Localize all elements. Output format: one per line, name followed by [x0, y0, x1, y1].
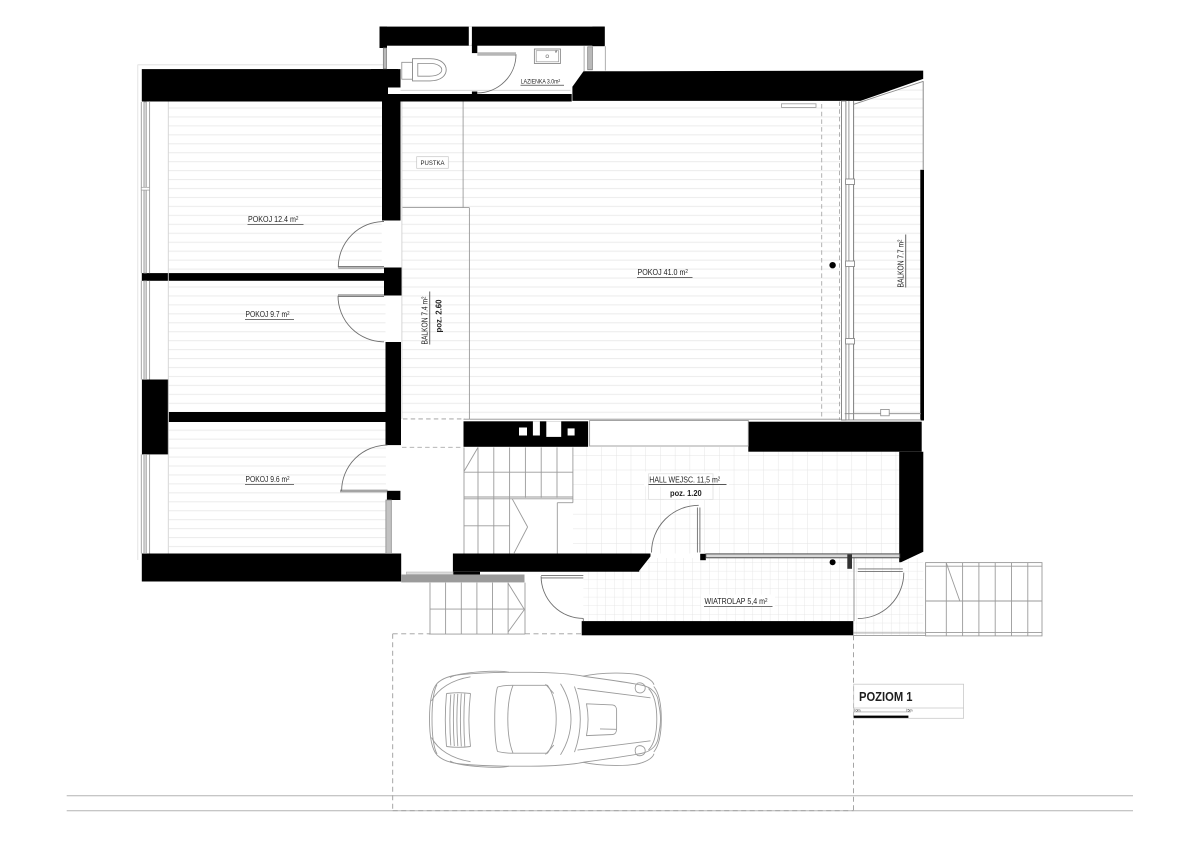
svg-text:POKOJ 9.6 m2: POKOJ 9.6 m2: [246, 474, 290, 484]
svg-text:WIATROLAP 5,4 m2: WIATROLAP 5,4 m2: [705, 596, 768, 606]
svg-text:5m: 5m: [908, 708, 913, 712]
svg-text:poz. 1.20: poz. 1.20: [670, 489, 702, 498]
svg-text:0m: 0m: [856, 708, 861, 712]
svg-text:HALL WEJSC. 11,5 m2: HALL WEJSC. 11,5 m2: [649, 474, 720, 484]
svg-text:PUSTKA: PUSTKA: [421, 160, 446, 167]
svg-text:ø: ø: [555, 50, 557, 54]
svg-text:LAZIENKA 3.0m2: LAZIENKA 3.0m2: [521, 78, 561, 86]
svg-text:BALKON 7.4 m2: BALKON 7.4 m2: [420, 296, 429, 344]
svg-text:poz. 2.60: poz. 2.60: [434, 299, 443, 333]
svg-text:POKOJ 12.4 m2: POKOJ 12.4 m2: [248, 214, 299, 224]
svg-text:POZIOM 1: POZIOM 1: [859, 689, 913, 704]
svg-text:POKOJ 41.0 m2: POKOJ 41.0 m2: [638, 267, 689, 277]
svg-text:BALKON 7.7 m2: BALKON 7.7 m2: [896, 239, 905, 287]
svg-text:POKOJ 9.7 m2: POKOJ 9.7 m2: [246, 309, 290, 319]
